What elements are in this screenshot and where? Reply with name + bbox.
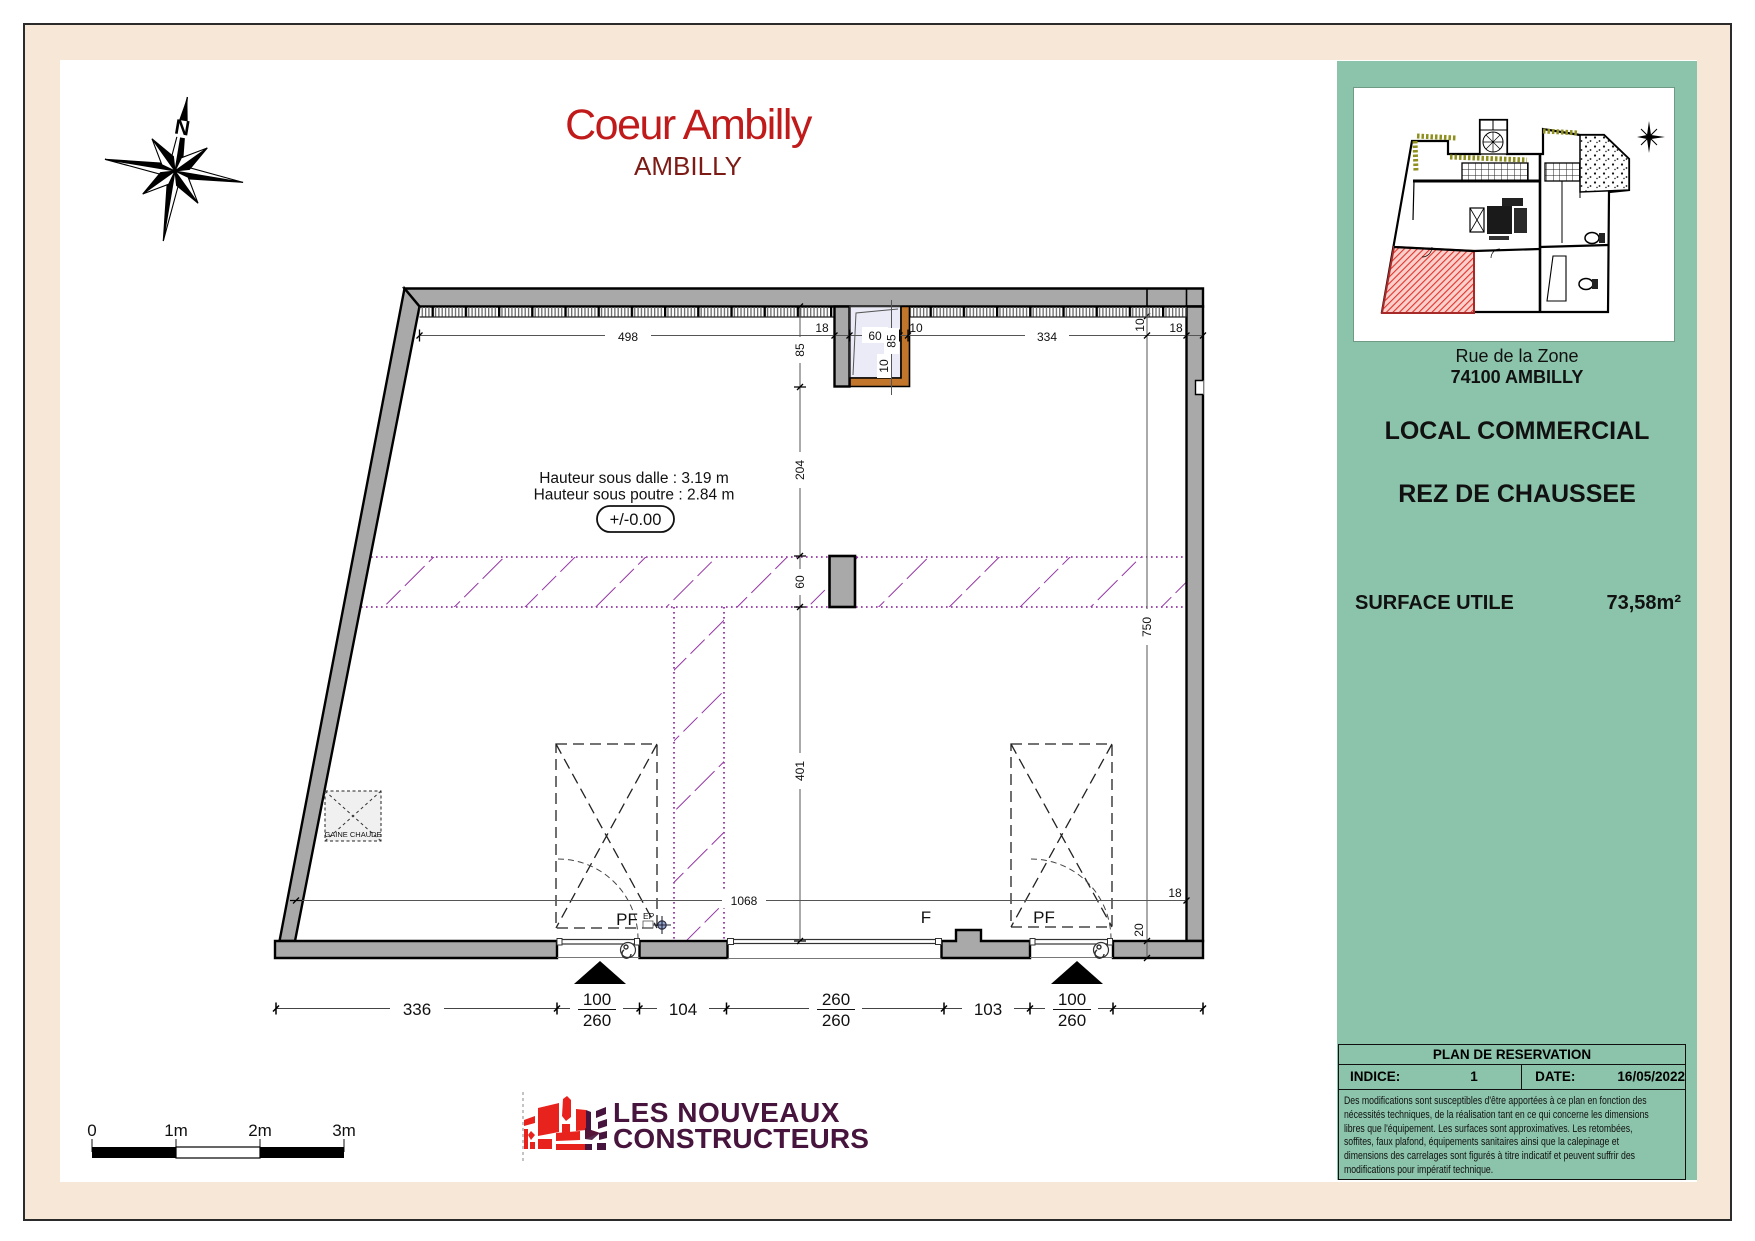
svg-text:85: 85 — [793, 343, 807, 357]
svg-text:18: 18 — [815, 321, 829, 335]
svg-text:104: 104 — [669, 1000, 697, 1019]
svg-text:336: 336 — [403, 1000, 431, 1019]
svg-text:1m: 1m — [164, 1121, 188, 1140]
svg-text:334: 334 — [1037, 330, 1057, 344]
svg-text:260: 260 — [822, 990, 850, 1009]
svg-text:260: 260 — [1058, 1011, 1086, 1030]
svg-text:Hauteur sous poutre : 2.84 m: Hauteur sous poutre : 2.84 m — [534, 487, 735, 504]
svg-text:10: 10 — [909, 321, 923, 335]
svg-text:103: 103 — [974, 1000, 1002, 1019]
svg-text:Hauteur sous dalle : 3.19 m: Hauteur sous dalle : 3.19 m — [539, 470, 729, 487]
svg-text:10: 10 — [1133, 318, 1147, 332]
svg-text:204: 204 — [793, 460, 807, 480]
svg-text:CONSTRUCTEURS: CONSTRUCTEURS — [613, 1123, 869, 1154]
svg-text:260: 260 — [583, 1011, 611, 1030]
svg-text:PF: PF — [616, 910, 638, 929]
svg-text:F: F — [921, 908, 931, 927]
svg-text:100: 100 — [583, 990, 611, 1009]
svg-text:1068: 1068 — [731, 894, 758, 908]
svg-text:3m: 3m — [332, 1121, 356, 1140]
svg-text:750: 750 — [1140, 617, 1154, 637]
svg-text:260: 260 — [822, 1011, 850, 1030]
svg-text:20: 20 — [1132, 923, 1146, 937]
svg-text:60: 60 — [868, 329, 882, 343]
svg-text:0: 0 — [87, 1121, 96, 1140]
svg-text:+/-0.00: +/-0.00 — [610, 511, 662, 529]
svg-text:10: 10 — [877, 359, 891, 373]
svg-text:85: 85 — [885, 334, 899, 348]
svg-text:60: 60 — [793, 575, 807, 589]
svg-text:2m: 2m — [248, 1121, 272, 1140]
svg-text:18: 18 — [1168, 886, 1182, 900]
svg-text:100: 100 — [1058, 990, 1086, 1009]
svg-text:PF: PF — [1033, 908, 1055, 927]
svg-text:498: 498 — [618, 330, 638, 344]
svg-text:EP: EP — [643, 911, 655, 921]
svg-text:18: 18 — [1169, 321, 1183, 335]
svg-text:GAINE CHAUDE: GAINE CHAUDE — [324, 830, 381, 839]
svg-text:401: 401 — [793, 761, 807, 781]
